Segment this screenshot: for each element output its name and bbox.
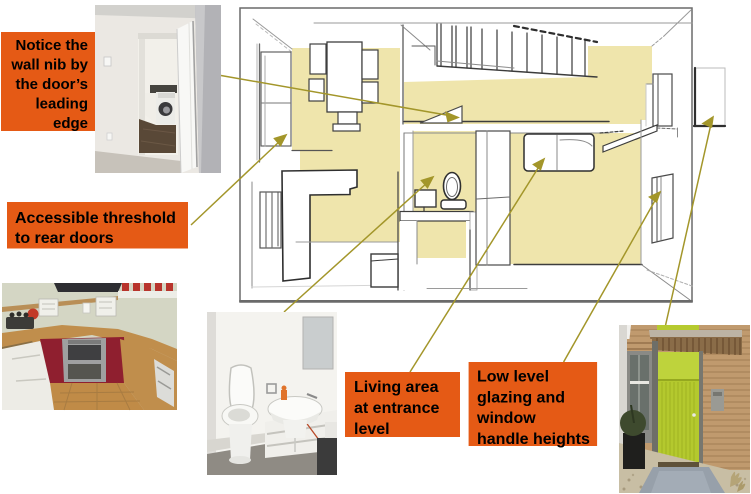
svg-text:glazing and: glazing and [477, 389, 565, 406]
svg-text:the door’s: the door’s [15, 76, 88, 93]
svg-text:window: window [476, 410, 536, 427]
svg-text:Living area: Living area [354, 379, 439, 396]
svg-text:wall nib by: wall nib by [10, 57, 88, 74]
svg-text:Low level: Low level [477, 369, 549, 386]
svg-text:handle heights: handle heights [477, 431, 590, 448]
svg-text:Notice the: Notice the [15, 37, 88, 54]
svg-text:level: level [354, 421, 390, 438]
svg-text:leading: leading [35, 96, 88, 113]
svg-text:edge: edge [53, 115, 88, 132]
svg-text:Accessible threshold: Accessible threshold [15, 210, 176, 227]
svg-text:to rear doors: to rear doors [15, 230, 114, 247]
svg-text:at entrance: at entrance [354, 400, 439, 417]
